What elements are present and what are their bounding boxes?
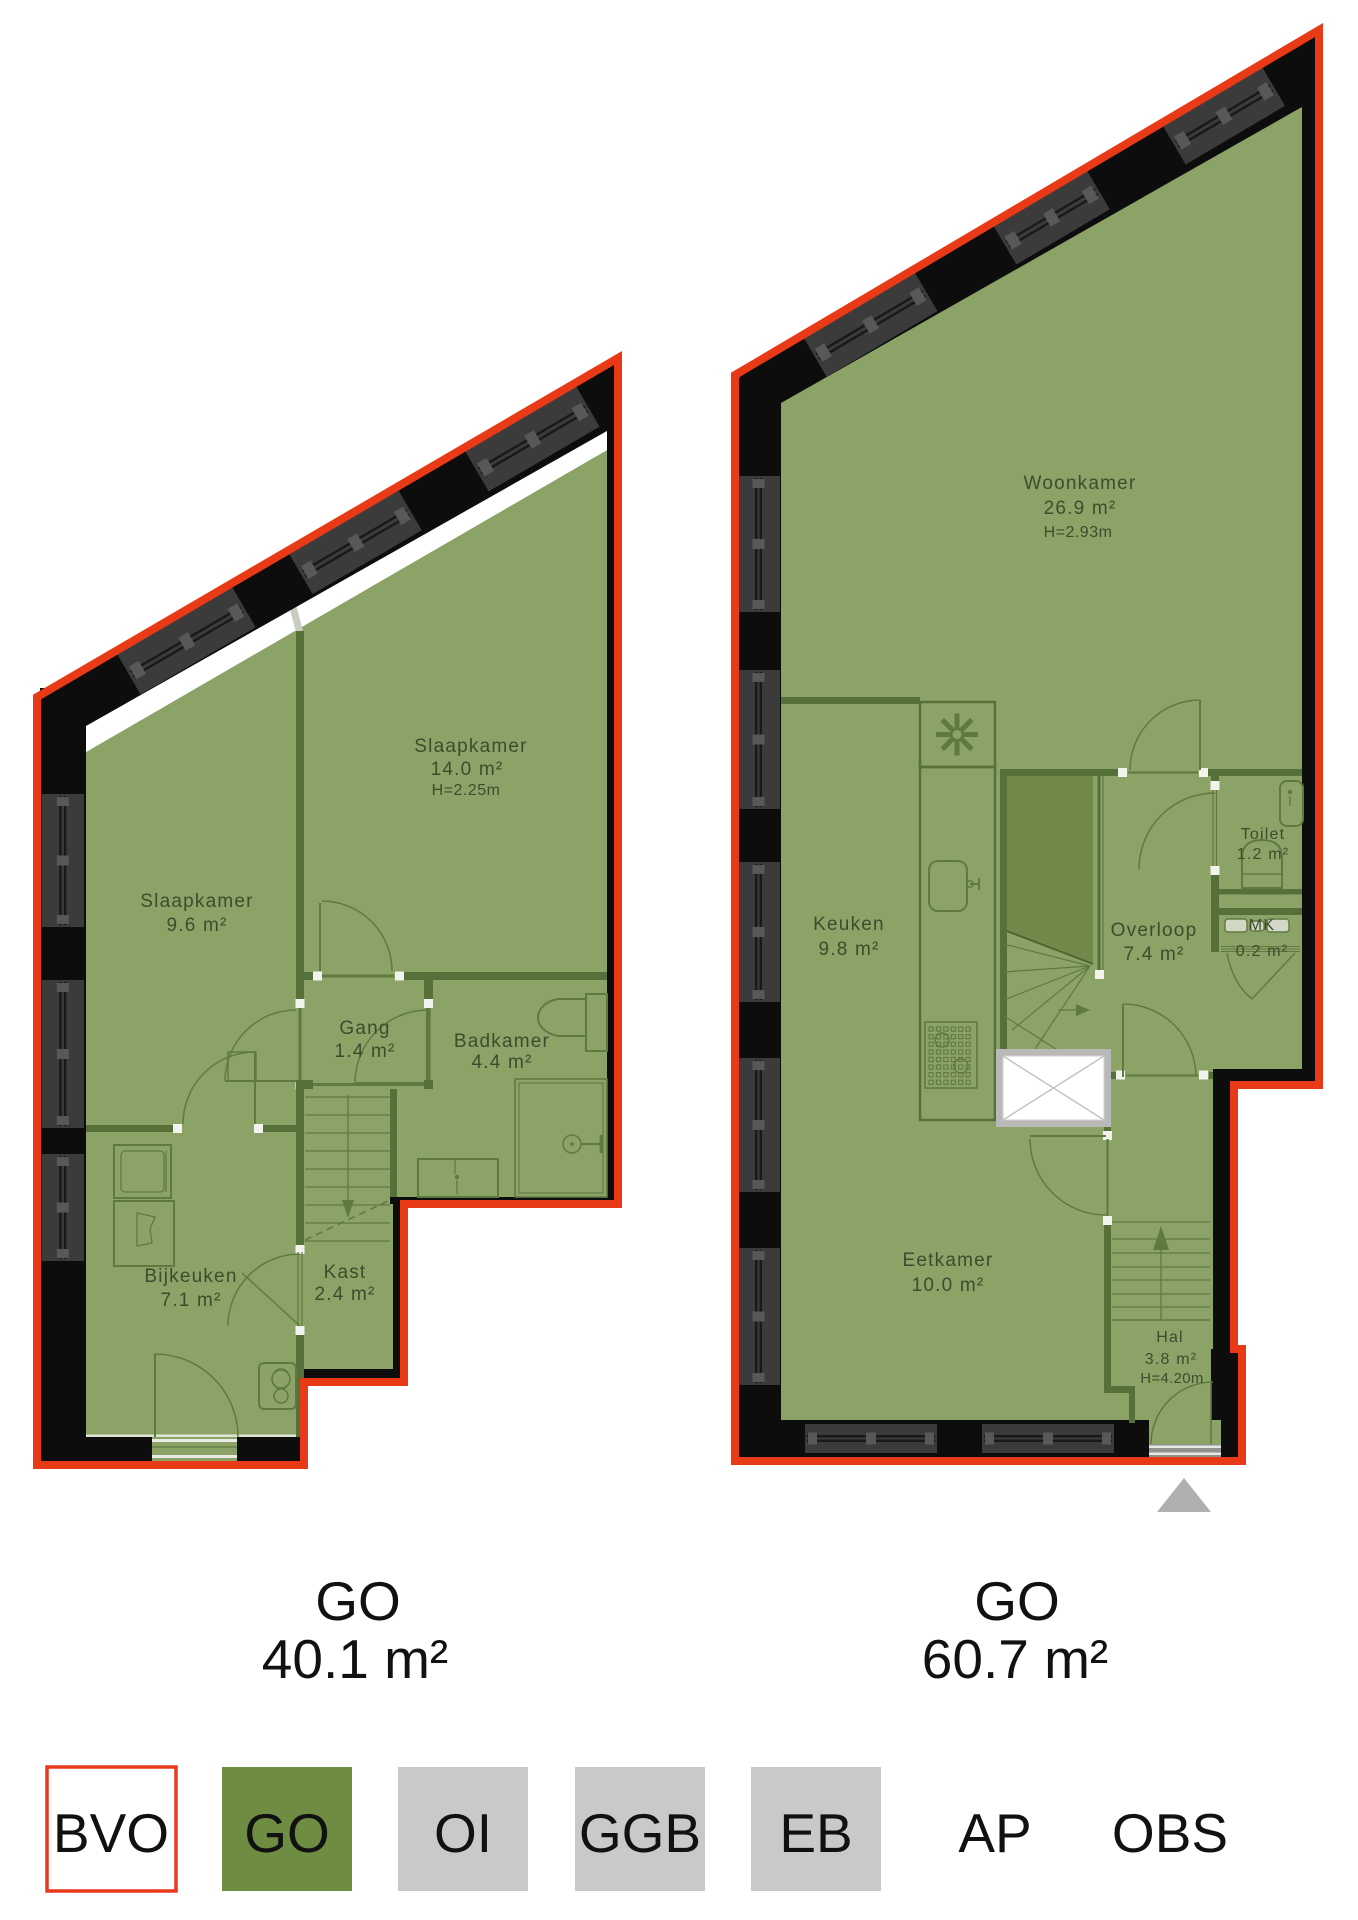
svg-text:MK: MK — [1249, 917, 1275, 934]
svg-text:OI: OI — [434, 1802, 492, 1864]
svg-text:3.8 m²: 3.8 m² — [1145, 1351, 1198, 1368]
svg-text:OBS: OBS — [1112, 1802, 1228, 1864]
svg-text:26.9 m²: 26.9 m² — [1044, 498, 1117, 519]
svg-text:0.2 m²: 0.2 m² — [1236, 943, 1289, 960]
svg-text:Kast: Kast — [324, 1262, 367, 1283]
svg-text:7.4 m²: 7.4 m² — [1123, 944, 1184, 965]
svg-text:Slaapkamer: Slaapkamer — [140, 891, 253, 912]
svg-text:H=2.25m: H=2.25m — [432, 782, 501, 799]
svg-text:Gang: Gang — [339, 1018, 390, 1039]
svg-text:AP: AP — [958, 1802, 1031, 1864]
svg-text:40.1 m²: 40.1 m² — [262, 1628, 448, 1690]
svg-text:9.6 m²: 9.6 m² — [166, 915, 227, 936]
svg-text:Bijkeuken: Bijkeuken — [144, 1266, 237, 1287]
svg-text:Toilet: Toilet — [1241, 826, 1286, 843]
svg-text:GO: GO — [974, 1570, 1060, 1632]
svg-text:2.4 m²: 2.4 m² — [314, 1284, 375, 1305]
svg-text:1.4 m²: 1.4 m² — [334, 1041, 395, 1062]
svg-text:Eetkamer: Eetkamer — [903, 1250, 994, 1271]
svg-text:Slaapkamer: Slaapkamer — [414, 736, 527, 757]
svg-text:60.7 m²: 60.7 m² — [922, 1628, 1108, 1690]
svg-text:Woonkamer: Woonkamer — [1024, 473, 1137, 494]
svg-text:EB: EB — [779, 1802, 852, 1864]
svg-text:10.0 m²: 10.0 m² — [912, 1275, 985, 1296]
svg-text:Badkamer: Badkamer — [454, 1031, 550, 1052]
svg-text:7.1 m²: 7.1 m² — [160, 1290, 221, 1311]
svg-text:H=2.93m: H=2.93m — [1044, 524, 1113, 541]
svg-text:Overloop: Overloop — [1111, 920, 1198, 941]
svg-text:Keuken: Keuken — [813, 914, 885, 935]
svg-text:H=4.20m: H=4.20m — [1140, 1370, 1203, 1387]
svg-text:GO: GO — [315, 1570, 401, 1632]
svg-text:9.8 m²: 9.8 m² — [818, 939, 879, 960]
svg-text:BVO: BVO — [53, 1802, 169, 1864]
svg-text:Hal: Hal — [1156, 1329, 1184, 1346]
svg-text:14.0 m²: 14.0 m² — [431, 759, 504, 780]
svg-text:4.4 m²: 4.4 m² — [471, 1052, 532, 1073]
svg-text:1.2 m²: 1.2 m² — [1237, 846, 1290, 863]
svg-text:GO: GO — [244, 1802, 330, 1864]
svg-text:GGB: GGB — [579, 1802, 701, 1864]
